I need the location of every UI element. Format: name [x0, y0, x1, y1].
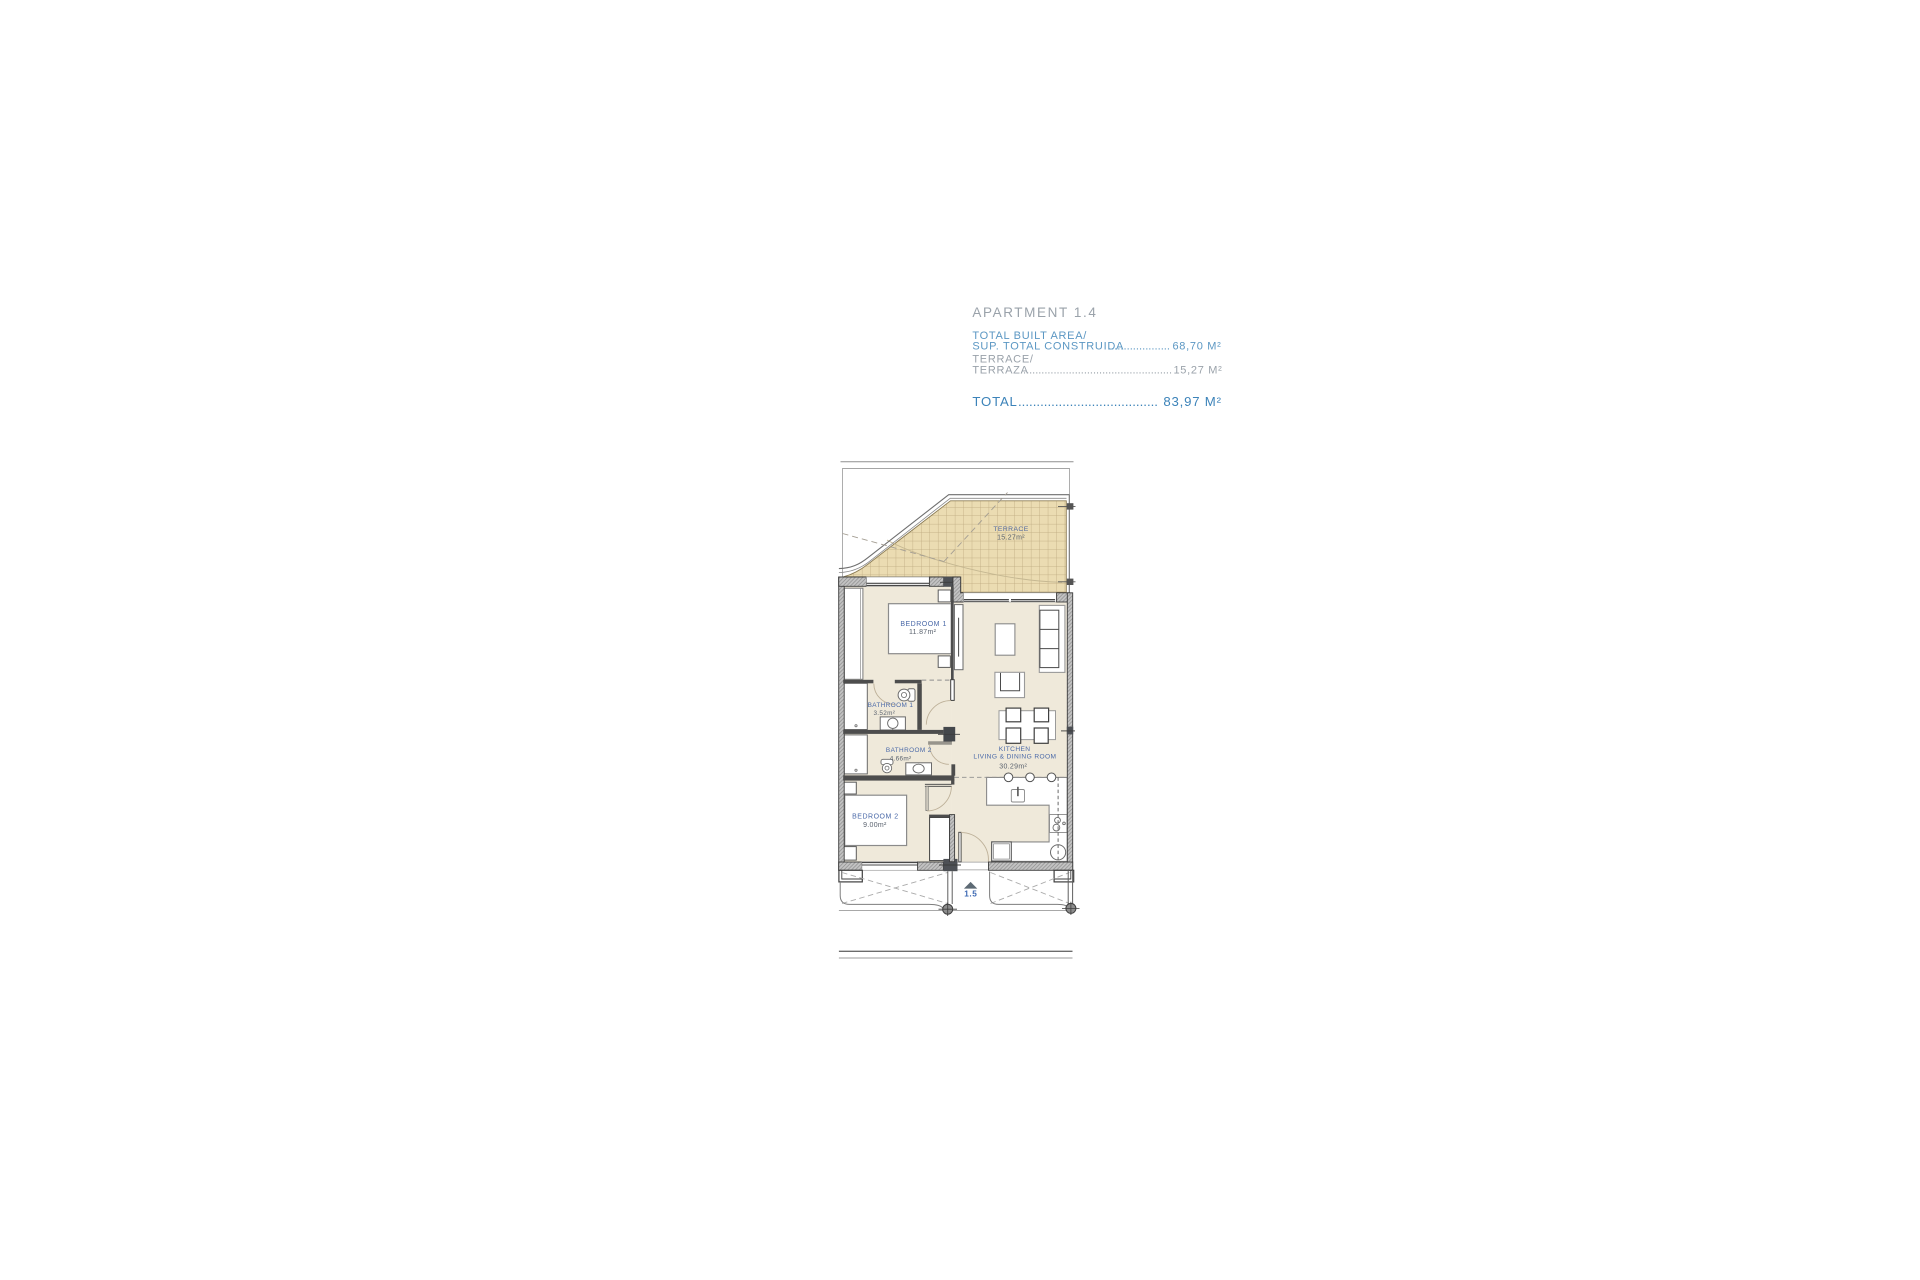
svg-text:83,97 M²: 83,97 M²: [1163, 394, 1221, 409]
svg-text:KITCHEN: KITCHEN: [999, 746, 1031, 753]
svg-text:TERRACE: TERRACE: [993, 526, 1028, 533]
svg-text:BEDROOM 1: BEDROOM 1: [900, 621, 947, 628]
svg-text:TOTAL: TOTAL: [972, 394, 1017, 409]
svg-text:11.87m²: 11.87m²: [909, 629, 937, 636]
svg-text:68,70 M²: 68,70 M²: [1172, 341, 1221, 353]
svg-text:BATHROOM 1: BATHROOM 1: [868, 702, 914, 709]
svg-text:30.29m²: 30.29m²: [999, 764, 1027, 771]
svg-text:BEDROOM 2: BEDROOM 2: [852, 814, 899, 821]
svg-text:LIVING & DINING ROOM: LIVING & DINING ROOM: [973, 754, 1056, 761]
svg-text:SUP. TOTAL CONSTRUIDA: SUP. TOTAL CONSTRUIDA: [972, 341, 1124, 353]
svg-text:BATHROOM 2: BATHROOM 2: [886, 747, 932, 754]
svg-text:1.5: 1.5: [964, 890, 977, 899]
svg-text:..............................: ......................................: [1018, 394, 1158, 409]
svg-text:15,27 M²: 15,27 M²: [1173, 365, 1222, 377]
svg-text:4.66m²: 4.66m²: [890, 755, 912, 762]
svg-text:15.27m²: 15.27m²: [997, 535, 1025, 542]
svg-text:..............................: ........................................…: [1020, 365, 1172, 377]
svg-text:....................: ....................: [1108, 341, 1170, 353]
svg-text:3.52m²: 3.52m²: [873, 710, 895, 717]
svg-text:9.00m²: 9.00m²: [863, 822, 887, 829]
svg-text:APARTMENT 1.4: APARTMENT 1.4: [972, 305, 1097, 320]
